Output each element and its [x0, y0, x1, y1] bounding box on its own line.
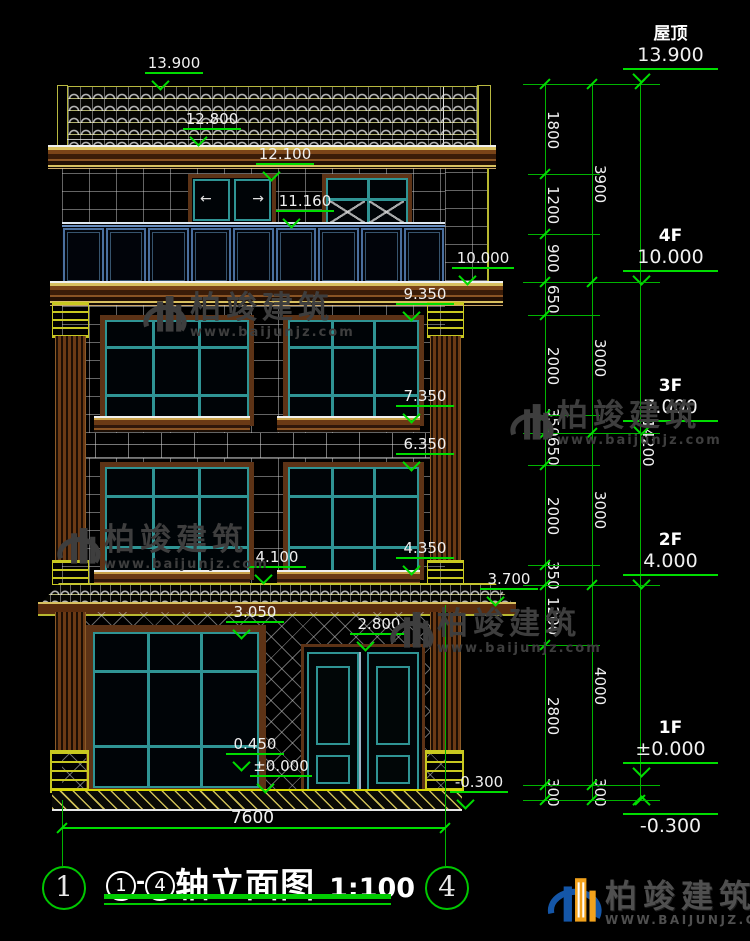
level-roof: 屋顶 13.900 — [623, 24, 718, 70]
elev-9350: 9.350 — [396, 286, 454, 305]
dim-label: 4000 — [592, 667, 608, 705]
window-mullion — [373, 322, 376, 419]
window-sill — [94, 416, 250, 432]
axis-bubble-4: 4 — [425, 866, 469, 910]
elev-6350: 6.350 — [396, 436, 454, 455]
casement-mark-icon — [369, 201, 404, 223]
entry-door — [301, 644, 425, 793]
elev-10000: 10.000 — [452, 250, 514, 269]
watermark: 柏竣建筑www.baijunjz.com — [505, 398, 722, 450]
railing-panel — [233, 228, 274, 285]
elev-12800: 12.800 — [183, 111, 241, 130]
level-2f: 2F 4.000 — [623, 530, 718, 576]
railing-panel — [318, 228, 359, 285]
elev-0000: ±0.000 — [250, 758, 312, 777]
level-4f: 4F 10.000 — [623, 226, 718, 272]
title-text: 轴立面图 — [175, 866, 315, 906]
watermark: 柏竣建筑www.baijunjz.com — [385, 606, 602, 658]
dim-label: 1800 — [545, 111, 561, 149]
dim-label: 3000 — [592, 491, 608, 529]
level-line — [528, 565, 600, 566]
window-mullion — [373, 469, 376, 573]
balcony-railing — [62, 222, 445, 286]
railing-panel — [106, 228, 147, 285]
elev-3700: 3.700 — [480, 571, 538, 590]
window-mullion — [107, 495, 247, 498]
window-mullion — [107, 394, 247, 397]
level-1f: 1F ±0.000 — [623, 718, 718, 764]
window-mullion — [95, 670, 257, 673]
cad-elevation-drawing: ← → — [0, 0, 750, 941]
level-line — [528, 315, 600, 316]
dim-label: 900 — [545, 244, 561, 273]
railing-panel — [276, 228, 317, 285]
door-leaf-left — [307, 652, 359, 793]
dim-label: 2800 — [545, 697, 561, 735]
watermark-logo-icon — [138, 290, 190, 342]
interstorey-band — [62, 433, 445, 458]
elev-12100: 12.100 — [256, 146, 314, 165]
pilaster-base-right — [427, 560, 464, 585]
level-line — [528, 234, 600, 235]
dim-label: 3000 — [592, 339, 608, 377]
elev-4350: 4.350 — [396, 540, 454, 559]
axis-line-1 — [62, 800, 63, 866]
railing-panel — [404, 228, 445, 285]
slide-arrow-right-icon: → — [252, 192, 264, 206]
watermark: 柏竣建筑www.baijunjz.com — [52, 522, 269, 574]
dim-label: 1200 — [545, 186, 561, 224]
window-sill — [277, 416, 420, 432]
watermark-logo-icon — [52, 522, 104, 574]
dim-label: 3900 — [592, 165, 608, 203]
dim-label: 2000 — [545, 347, 561, 385]
window-4f-frame — [326, 178, 408, 226]
pilaster-capital-right — [427, 302, 464, 338]
roof-band-line — [67, 139, 477, 140]
watermark-logo-icon — [505, 398, 557, 450]
column-base-left — [50, 750, 89, 793]
window-mullion — [290, 346, 417, 349]
railing-panel — [63, 228, 104, 285]
watermark: 柏竣建筑www.baijunjz.com — [138, 290, 355, 342]
title-underline-thick — [104, 894, 391, 899]
elev-3050: 3.050 — [226, 604, 284, 623]
elev-11160: 11.160 — [276, 193, 334, 212]
elev-n0300: -0.300 — [450, 774, 508, 793]
door-center-line — [359, 652, 361, 793]
window-mullion — [147, 634, 150, 786]
slide-arrow-left-icon: ← — [200, 192, 212, 206]
elev-13900: 13.900 — [145, 55, 203, 74]
elev-7350: 7.350 — [396, 388, 454, 407]
axis-bubble-1: 1 — [42, 866, 86, 910]
column-1f-left — [55, 612, 86, 752]
casement-mark-icon — [330, 201, 365, 223]
width-dim-label: 7600 — [180, 808, 325, 828]
window-mullion — [290, 495, 417, 498]
roof-divider-line — [443, 87, 444, 145]
railing-panel — [361, 228, 402, 285]
railing-panel — [148, 228, 189, 285]
roof-parapet-right-edge — [477, 85, 491, 149]
door-leaf-right — [367, 652, 419, 793]
elev-0450: 0.450 — [226, 736, 284, 755]
watermark-logo-icon — [385, 606, 437, 658]
level-line — [528, 465, 600, 466]
footer-brand-logo: 柏竣建筑WWW.BAIJUNJZ.COM — [543, 872, 750, 934]
railing-panel — [191, 228, 232, 285]
pilaster-capital-left — [52, 302, 89, 338]
window-mullion — [200, 634, 203, 786]
dim-label: 2000 — [545, 497, 561, 535]
brand-logo-icon — [543, 872, 605, 934]
window-mullion — [331, 469, 334, 573]
title-underline-thin — [104, 903, 391, 905]
title-scale: 1:100 — [329, 873, 415, 904]
drawing-title: 1-4轴立面图1:100 — [106, 858, 415, 907]
level-line — [528, 174, 600, 175]
window-mullion — [107, 346, 247, 349]
title-dash: - — [136, 870, 145, 895]
